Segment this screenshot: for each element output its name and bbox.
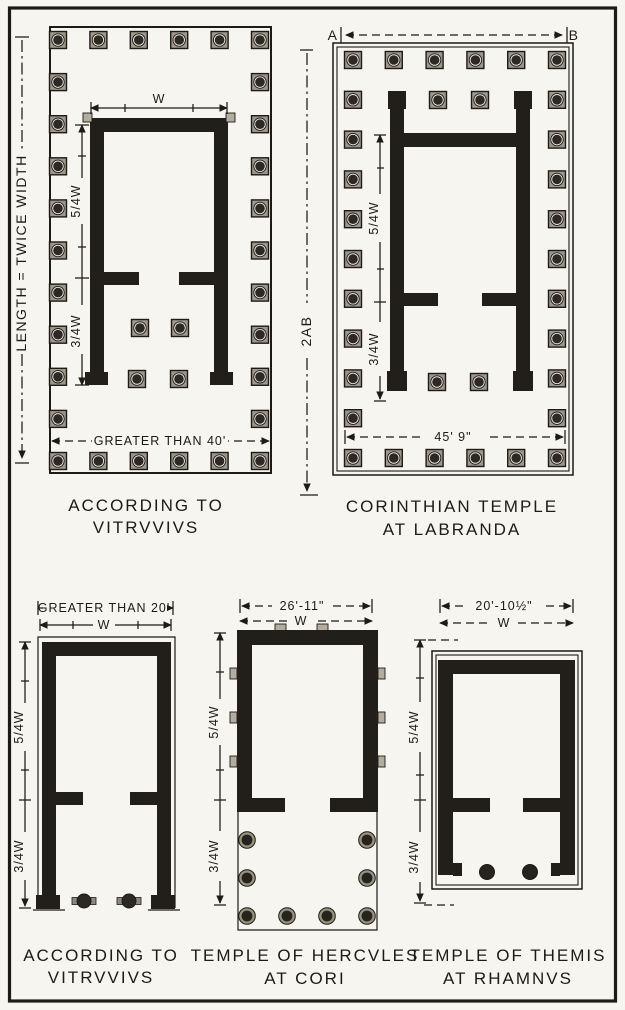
- pronaos-depth-label: 3/4W: [12, 839, 26, 872]
- depth-dimensions: 5/4W 3/4W: [12, 642, 31, 908]
- front-dimension: 45' 9": [345, 428, 565, 445]
- platform-outline-inner: [337, 47, 569, 471]
- temple-plans-figure: W 5/4W 3/4W GREATER THAN 40' LENGTH = TW…: [0, 0, 625, 1010]
- front-dim-label: 26'-11": [280, 599, 325, 613]
- plan-rhamnus: 20'-10½" W: [407, 598, 607, 988]
- porch-columns: [239, 832, 376, 925]
- plan-cori: 26'-11" W: [191, 598, 420, 988]
- width-label: W: [295, 614, 308, 628]
- naos-front-wall: [404, 133, 516, 147]
- front-dim-label: 45' 9": [434, 430, 471, 444]
- pronaos-depth-label: 3/4W: [207, 839, 221, 872]
- anta-cap: [514, 91, 532, 109]
- plan-vitruvius-large: W 5/4W 3/4W GREATER THAN 40' LENGTH = TW…: [13, 27, 271, 537]
- crosswall-stub: [104, 272, 139, 285]
- pronaos-columns: [129, 320, 189, 388]
- front-dimension: GREATER THAN 20': [38, 600, 173, 615]
- crosswall-stub: [130, 792, 157, 805]
- caption-line1: ACCORDING TO: [68, 496, 224, 515]
- peristyle-columns: [345, 52, 566, 467]
- anta-foot: [36, 895, 60, 909]
- cella-walls: [237, 630, 378, 812]
- naos-depth-label: 5/4W: [407, 710, 421, 743]
- cella-walls: [438, 660, 575, 876]
- width-dimension: W: [40, 616, 171, 632]
- naos-depth-label: 5/4W: [207, 705, 221, 738]
- length-rule-label: LENGTH = TWICE WIDTH: [13, 154, 29, 351]
- anta-foot: [151, 895, 175, 909]
- crosswall-stub: [179, 272, 214, 285]
- crosswall-stub: [404, 293, 438, 306]
- platform-outline: [432, 651, 582, 889]
- pronaos-depth-label: 3/4W: [69, 314, 83, 347]
- width-label: W: [498, 616, 511, 630]
- anta-return: [453, 798, 490, 812]
- caption-line1: TEMPLE OF HERCVLES: [191, 946, 420, 965]
- naos-depth-label: 5/4W: [367, 201, 381, 234]
- crosswall-stub: [482, 293, 516, 306]
- wall-pilasters: [230, 624, 385, 767]
- point-b-label: B: [569, 27, 580, 43]
- anta-foot: [551, 863, 560, 876]
- anta-foot: [210, 372, 233, 385]
- naos-depth-label: 5/4W: [69, 184, 83, 217]
- scanned-plate: W 5/4W 3/4W GREATER THAN 40' LENGTH = TW…: [0, 0, 625, 1010]
- caption-line2: VITRVVIVS: [48, 968, 155, 987]
- anta-return: [330, 798, 378, 812]
- naos-depth-label: 5/4W: [12, 710, 26, 743]
- length-rule-dimension: LENGTH = TWICE WIDTH: [13, 37, 29, 463]
- porch-columns: [72, 894, 141, 908]
- caption-line2: AT LABRANDA: [383, 520, 522, 539]
- anta-foot: [85, 372, 108, 385]
- pronaos-depth-label: 3/4W: [367, 332, 381, 365]
- depth-dimensions: 5/4W 3/4W: [69, 125, 89, 385]
- front-dim-label: GREATER THAN 40': [94, 434, 227, 448]
- pronaos-depth-label: 3/4W: [407, 840, 421, 873]
- front-dimension: 26'-11": [240, 598, 372, 613]
- front-dimension: 20'-10½": [440, 598, 573, 613]
- width-label: W: [153, 92, 166, 106]
- width-dimension: W: [440, 615, 573, 630]
- width-dimension: W: [91, 92, 227, 114]
- width-dimension: W: [240, 613, 372, 628]
- anta-cap: [388, 91, 406, 109]
- front-dim-label: 20'-10½": [475, 599, 532, 613]
- platform-outline-inner: [436, 655, 578, 885]
- porch-outline: [238, 812, 377, 930]
- length-dimension: 2AB: [298, 50, 318, 495]
- anta-cap: [83, 113, 92, 122]
- front-dimension: GREATER THAN 40': [52, 432, 269, 448]
- anta-foot: [387, 371, 407, 391]
- anta-foot: [453, 863, 462, 876]
- caption-line1: CORINTHIAN TEMPLE: [346, 497, 558, 516]
- cella-walls: [36, 642, 175, 909]
- ab-dimension: A B: [328, 27, 580, 43]
- anta-return: [523, 798, 560, 812]
- platform-outline: [38, 637, 175, 908]
- depth-dimensions: 5/4W 3/4W: [367, 135, 386, 401]
- point-a-label: A: [328, 27, 339, 43]
- depth-dimensions: 5/4W 3/4W: [207, 633, 226, 905]
- front-dim-label: GREATER THAN 20': [38, 601, 171, 615]
- caption-line1: ACCORDING TO: [23, 946, 179, 965]
- caption-line2: AT RHAMNVS: [443, 969, 573, 988]
- plan-labranda: A B: [298, 27, 579, 539]
- porch-columns: [480, 865, 538, 880]
- plan-vitruvius-small: GREATER THAN 20' W: [12, 600, 180, 987]
- caption-line1: TEMPLE OF THEMIS: [410, 946, 607, 965]
- caption-line2: VITRVVIVS: [93, 518, 200, 537]
- crosswall-stub: [56, 792, 83, 805]
- cella-walls: [83, 113, 235, 385]
- length-label: 2AB: [298, 316, 314, 347]
- width-label: W: [98, 618, 111, 632]
- anta-foot: [513, 371, 533, 391]
- anta-return: [237, 798, 285, 812]
- cella-walls: [387, 91, 533, 391]
- caption-line2: AT CORI: [264, 969, 345, 988]
- anta-cap: [226, 113, 235, 122]
- platform-outline: [333, 43, 573, 475]
